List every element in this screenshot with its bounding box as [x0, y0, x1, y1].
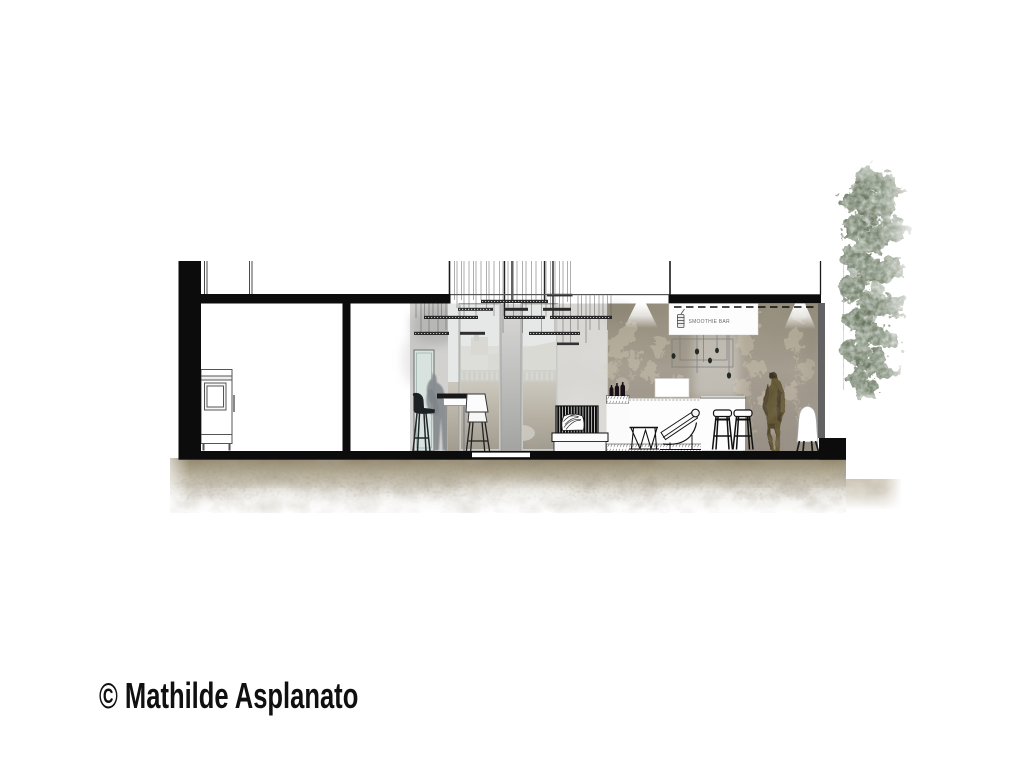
- svg-text:SMOOTHIE BAR: SMOOTHIE BAR: [689, 319, 730, 325]
